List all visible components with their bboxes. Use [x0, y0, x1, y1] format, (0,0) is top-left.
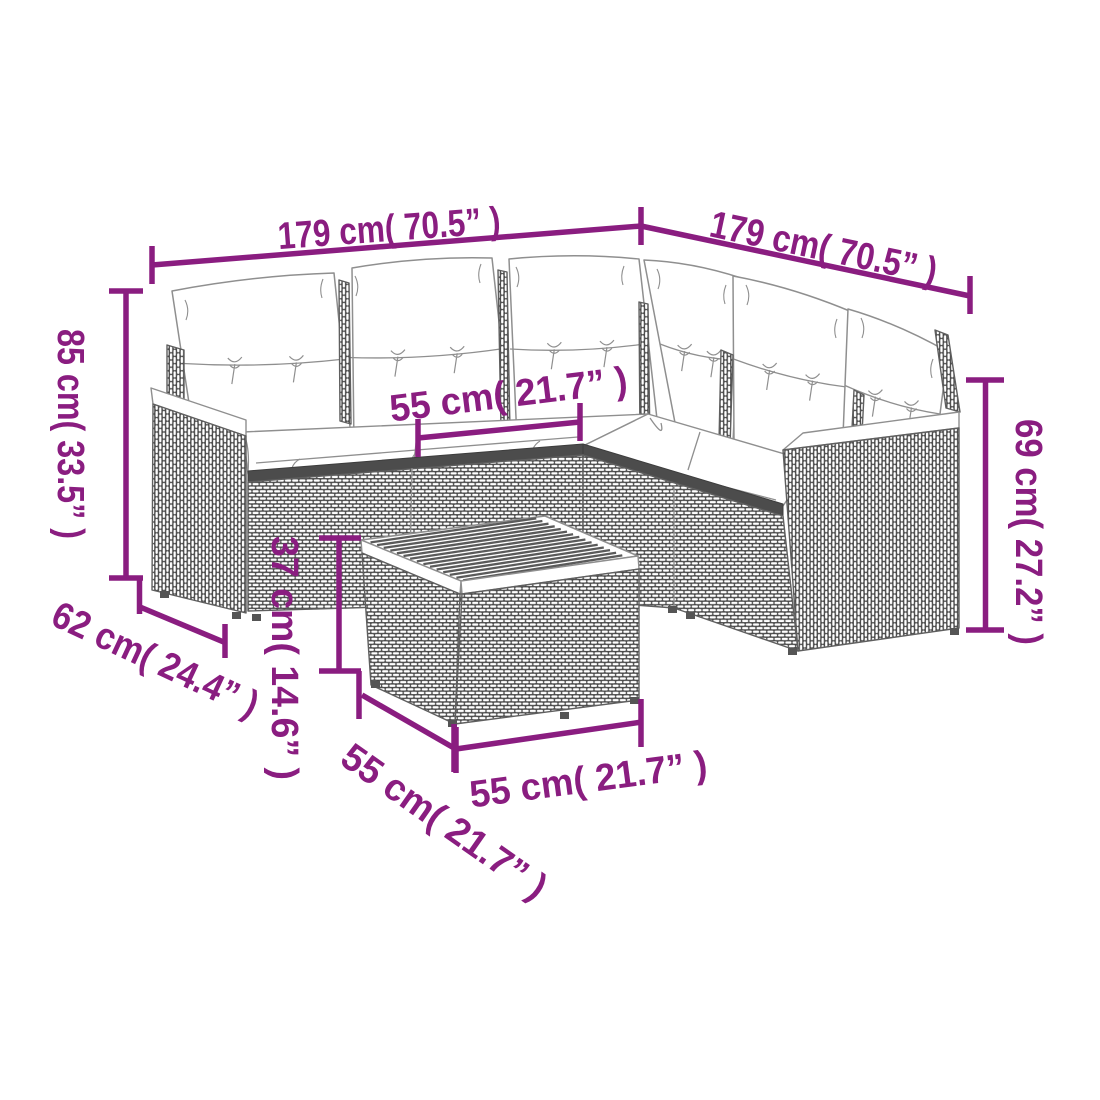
svg-text:85 cm( 33.5” ): 85 cm( 33.5” )	[49, 329, 91, 539]
svg-text:37 cm( 14.6” ): 37 cm( 14.6” )	[263, 536, 305, 780]
svg-text:69 cm( 27.2” ): 69 cm( 27.2” )	[1007, 419, 1049, 645]
